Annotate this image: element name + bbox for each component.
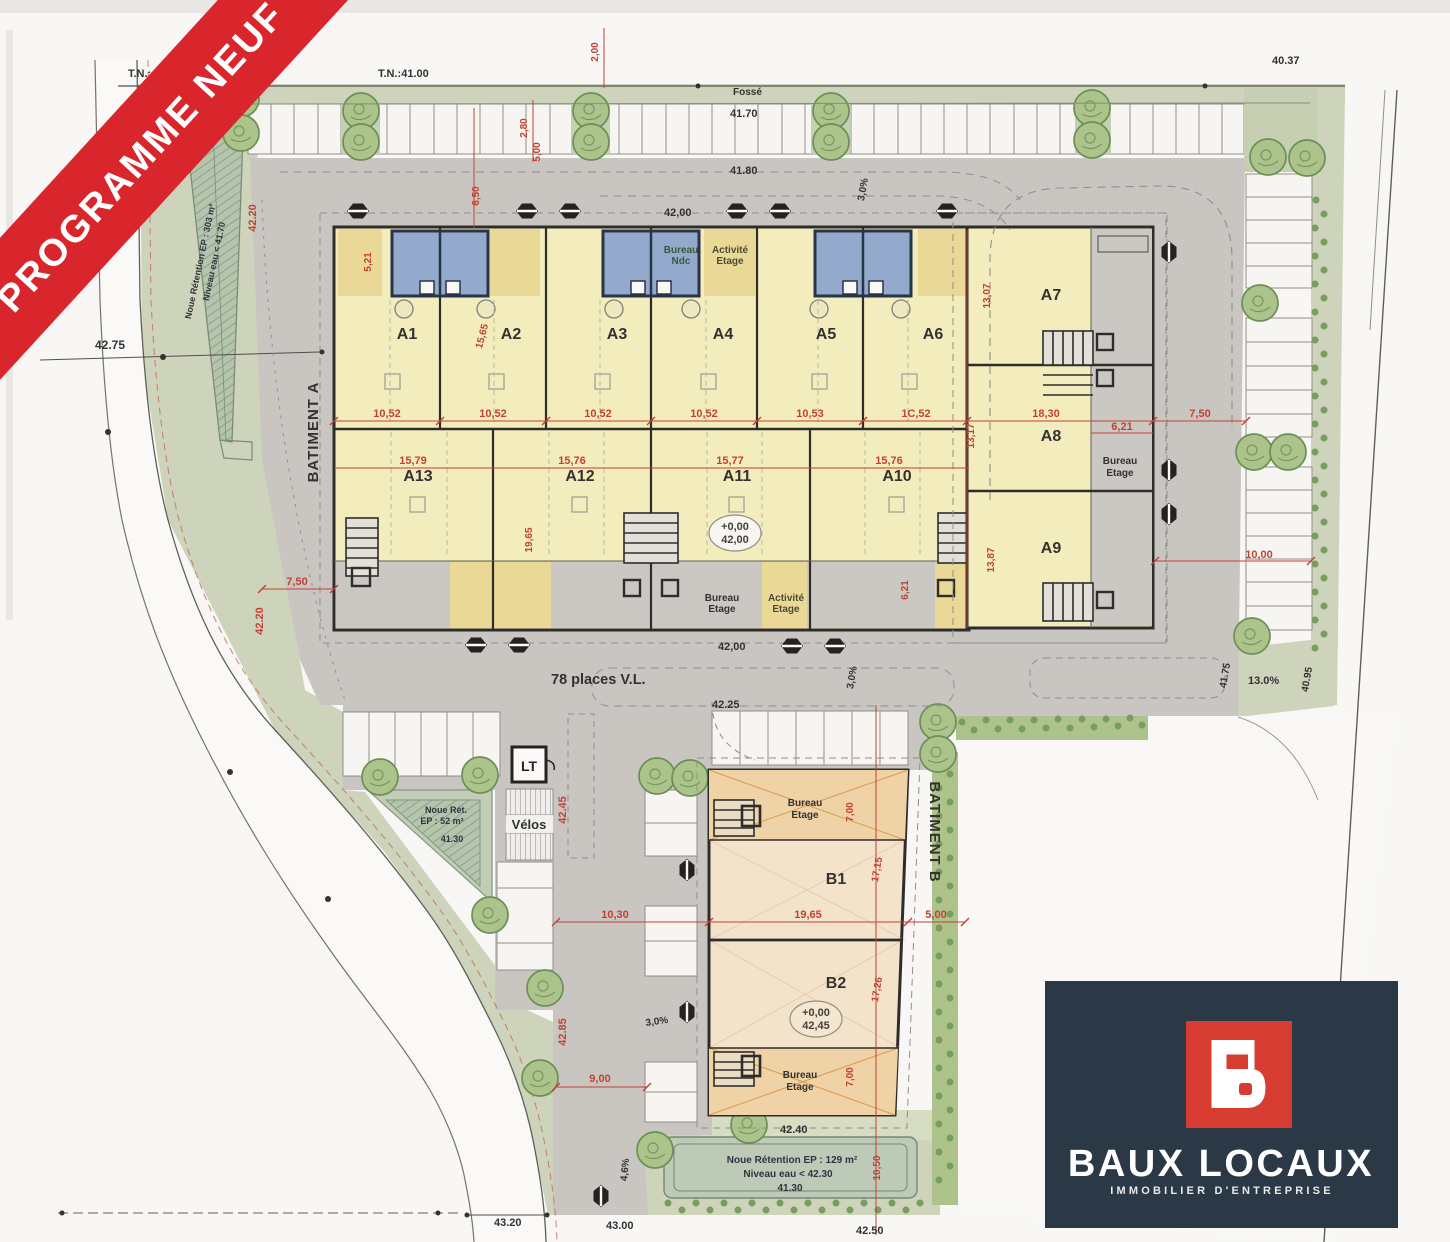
svg-text:BAUX LOCAUX: BAUX LOCAUX: [1068, 1143, 1374, 1185]
svg-text:IMMOBILIER D'ENTREPRISE: IMMOBILIER D'ENTREPRISE: [1110, 1185, 1334, 1197]
